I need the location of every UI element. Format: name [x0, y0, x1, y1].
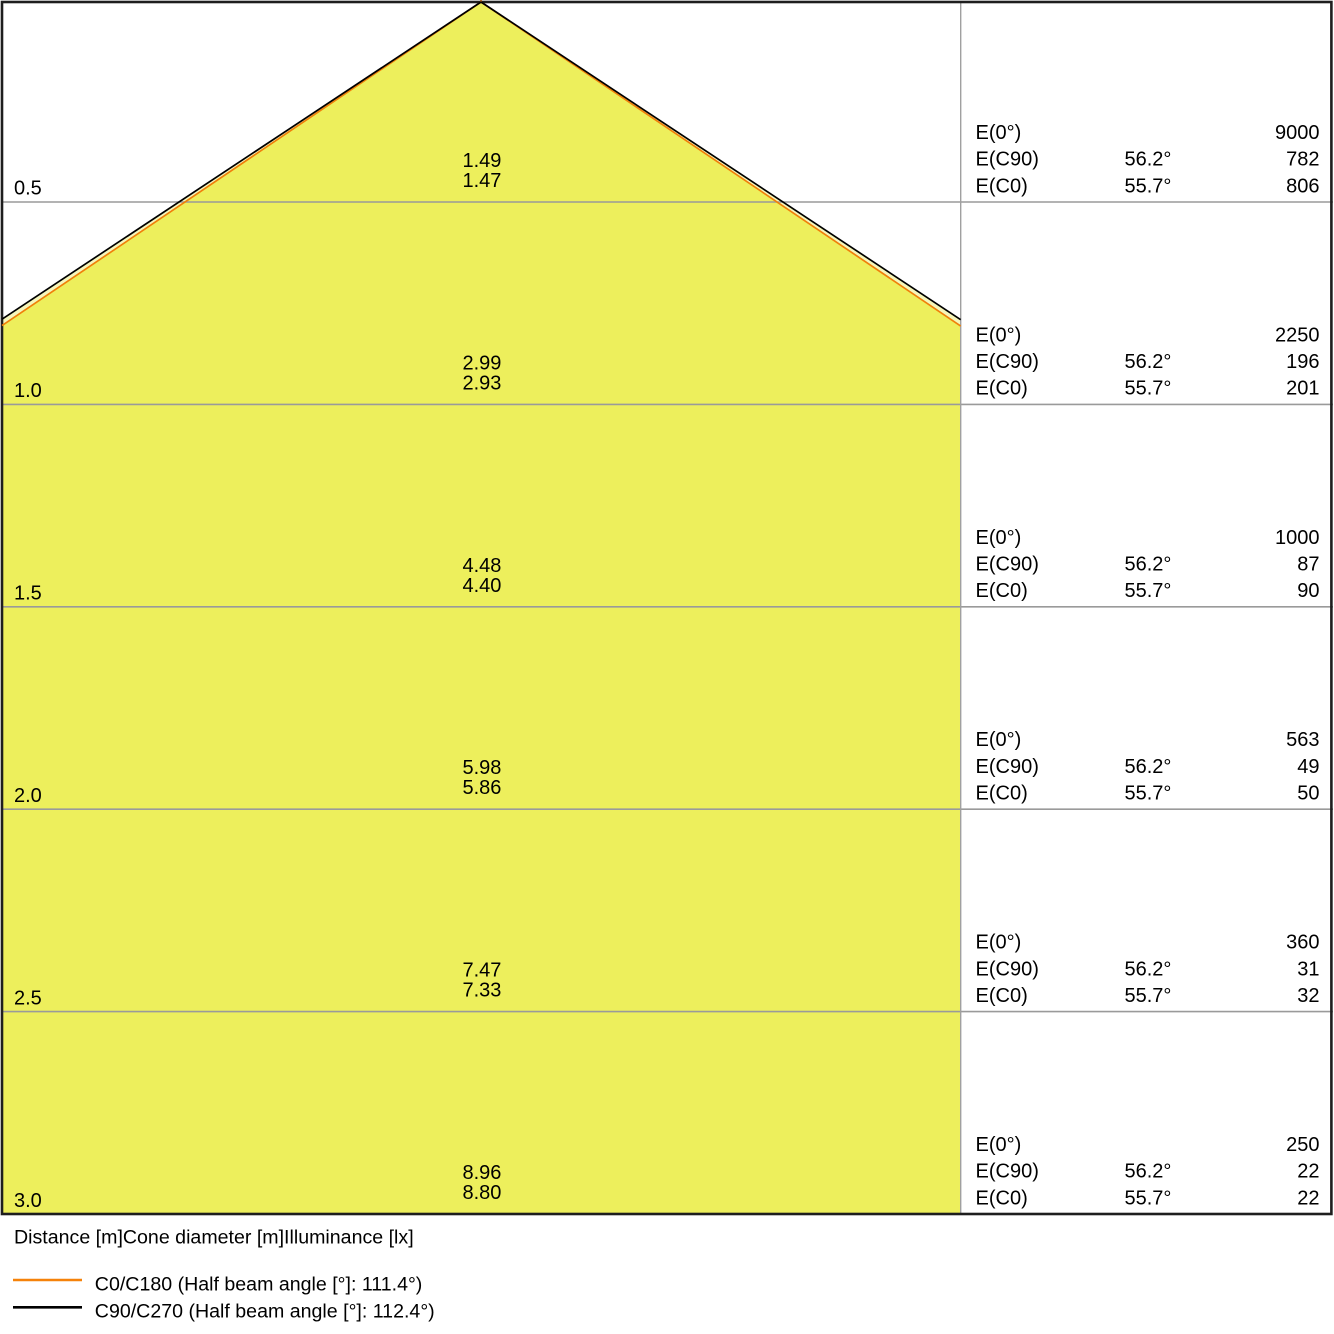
svg-text:0.5: 0.5 — [14, 178, 42, 200]
svg-text:E(C90): E(C90) — [976, 958, 1039, 980]
svg-text:1.49: 1.49 — [463, 150, 502, 172]
svg-text:8.80: 8.80 — [463, 1182, 502, 1204]
svg-text:2.5: 2.5 — [14, 987, 42, 1009]
svg-text:22: 22 — [1297, 1187, 1319, 1209]
svg-text:E(0°): E(0°) — [976, 324, 1022, 346]
svg-text:55.7°: 55.7° — [1125, 175, 1172, 197]
svg-text:3.0: 3.0 — [14, 1190, 42, 1212]
svg-text:90: 90 — [1297, 580, 1319, 602]
svg-text:E(0°): E(0°) — [976, 932, 1022, 954]
svg-text:782: 782 — [1286, 149, 1319, 171]
svg-text:563: 563 — [1286, 729, 1319, 751]
svg-text:E(C90): E(C90) — [976, 554, 1039, 576]
svg-text:2.93: 2.93 — [463, 372, 502, 394]
svg-text:1.47: 1.47 — [463, 170, 502, 192]
svg-text:56.2°: 56.2° — [1125, 351, 1172, 373]
svg-text:31: 31 — [1297, 958, 1319, 980]
svg-text:E(0°): E(0°) — [976, 527, 1022, 549]
svg-text:87: 87 — [1297, 554, 1319, 576]
svg-text:E(0°): E(0°) — [976, 729, 1022, 751]
svg-text:Distance [m]Cone diameter [m]I: Distance [m]Cone diameter [m]Illuminance… — [14, 1227, 414, 1249]
svg-text:49: 49 — [1297, 756, 1319, 778]
svg-text:56.2°: 56.2° — [1125, 958, 1172, 980]
svg-text:360: 360 — [1286, 932, 1319, 954]
svg-text:7.47: 7.47 — [463, 960, 502, 982]
svg-text:56.2°: 56.2° — [1125, 554, 1172, 576]
svg-text:250: 250 — [1286, 1134, 1319, 1156]
svg-text:55.7°: 55.7° — [1125, 580, 1172, 602]
svg-text:9000: 9000 — [1275, 122, 1320, 144]
svg-text:201: 201 — [1286, 378, 1319, 400]
svg-text:55.7°: 55.7° — [1125, 783, 1172, 805]
svg-text:196: 196 — [1286, 351, 1319, 373]
svg-text:55.7°: 55.7° — [1125, 378, 1172, 400]
svg-text:4.48: 4.48 — [463, 555, 502, 577]
svg-text:22: 22 — [1297, 1161, 1319, 1183]
svg-text:56.2°: 56.2° — [1125, 756, 1172, 778]
svg-text:1000: 1000 — [1275, 527, 1320, 549]
svg-text:7.33: 7.33 — [463, 980, 502, 1002]
svg-text:E(C0): E(C0) — [976, 1187, 1028, 1209]
svg-text:1.5: 1.5 — [14, 583, 42, 605]
svg-text:E(C90): E(C90) — [976, 351, 1039, 373]
svg-text:E(0°): E(0°) — [976, 1134, 1022, 1156]
svg-text:32: 32 — [1297, 985, 1319, 1007]
svg-text:E(C90): E(C90) — [976, 149, 1039, 171]
svg-text:E(C0): E(C0) — [976, 783, 1028, 805]
svg-text:2.0: 2.0 — [14, 785, 42, 807]
svg-text:2250: 2250 — [1275, 324, 1320, 346]
svg-text:E(C90): E(C90) — [976, 756, 1039, 778]
svg-text:C90/C270 (Half beam angle [°]:: C90/C270 (Half beam angle [°]: 112.4°) — [95, 1301, 435, 1323]
svg-text:50: 50 — [1297, 783, 1319, 805]
svg-text:55.7°: 55.7° — [1125, 1187, 1172, 1209]
svg-text:55.7°: 55.7° — [1125, 985, 1172, 1007]
svg-text:E(C0): E(C0) — [976, 378, 1028, 400]
svg-text:E(C90): E(C90) — [976, 1161, 1039, 1183]
svg-text:C0/C180 (Half beam angle [°]:: C0/C180 (Half beam angle [°]: 111.4°) — [95, 1274, 423, 1296]
svg-text:5.86: 5.86 — [463, 777, 502, 799]
svg-text:2.99: 2.99 — [463, 352, 502, 374]
svg-text:5.98: 5.98 — [463, 757, 502, 779]
svg-text:56.2°: 56.2° — [1125, 149, 1172, 171]
svg-text:56.2°: 56.2° — [1125, 1161, 1172, 1183]
svg-text:8.96: 8.96 — [463, 1162, 502, 1184]
svg-text:1.0: 1.0 — [14, 380, 42, 402]
svg-text:4.40: 4.40 — [463, 575, 502, 597]
svg-text:E(0°): E(0°) — [976, 122, 1022, 144]
svg-text:E(C0): E(C0) — [976, 580, 1028, 602]
svg-text:E(C0): E(C0) — [976, 175, 1028, 197]
svg-text:E(C0): E(C0) — [976, 985, 1028, 1007]
svg-text:806: 806 — [1286, 175, 1319, 197]
